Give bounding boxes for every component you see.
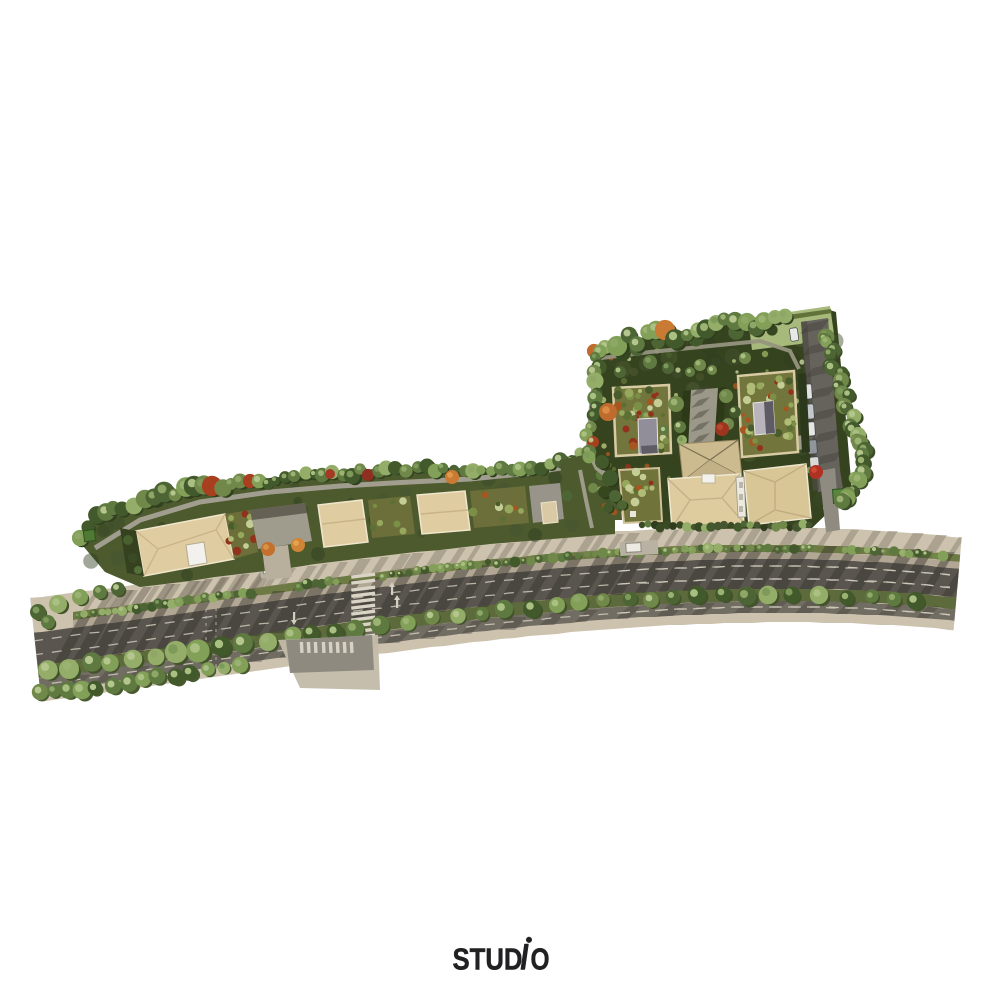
svg-text:STUD: STUD <box>453 942 523 977</box>
svg-text:O: O <box>531 942 550 976</box>
